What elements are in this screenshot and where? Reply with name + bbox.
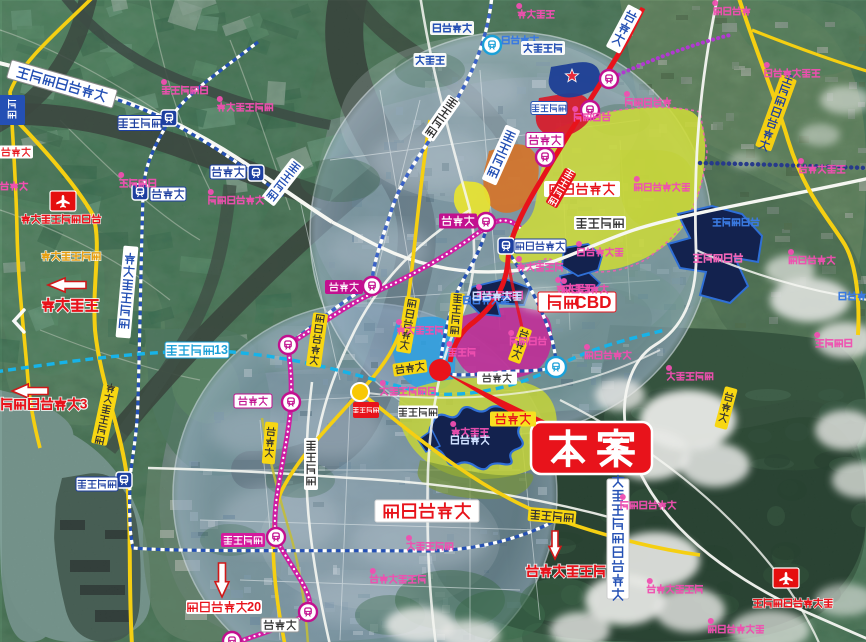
svg-text:13: 13: [214, 343, 228, 357]
svg-text:3: 3: [80, 397, 88, 412]
svg-text:20: 20: [247, 600, 261, 614]
svg-text:CBD: CBD: [574, 292, 611, 312]
